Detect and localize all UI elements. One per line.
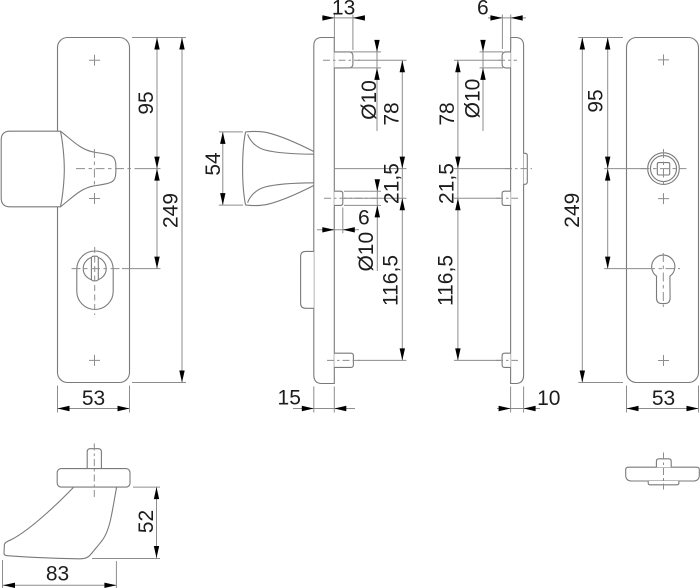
svg-text:10: 10 bbox=[537, 387, 560, 410]
svg-text:116,5: 116,5 bbox=[380, 255, 403, 306]
svg-text:15: 15 bbox=[278, 387, 301, 410]
svg-text:78: 78 bbox=[436, 102, 459, 125]
svg-text:95: 95 bbox=[585, 89, 608, 112]
svg-text:6: 6 bbox=[358, 207, 370, 230]
svg-text:Ø10: Ø10 bbox=[355, 232, 378, 272]
svg-text:249: 249 bbox=[561, 193, 584, 228]
svg-text:53: 53 bbox=[652, 387, 675, 410]
svg-text:52: 52 bbox=[135, 510, 158, 533]
svg-text:Ø10: Ø10 bbox=[358, 80, 381, 120]
svg-text:116,5: 116,5 bbox=[435, 255, 458, 306]
svg-text:54: 54 bbox=[202, 152, 225, 176]
svg-text:53: 53 bbox=[82, 387, 105, 410]
svg-text:95: 95 bbox=[135, 91, 158, 114]
svg-text:21,5: 21,5 bbox=[381, 163, 404, 204]
svg-text:21,5: 21,5 bbox=[436, 163, 459, 204]
svg-text:Ø10: Ø10 bbox=[461, 79, 484, 119]
svg-text:249: 249 bbox=[160, 193, 183, 228]
svg-text:78: 78 bbox=[381, 102, 404, 125]
svg-text:6: 6 bbox=[477, 0, 489, 20]
svg-text:83: 83 bbox=[46, 563, 69, 586]
svg-text:13: 13 bbox=[332, 0, 355, 20]
